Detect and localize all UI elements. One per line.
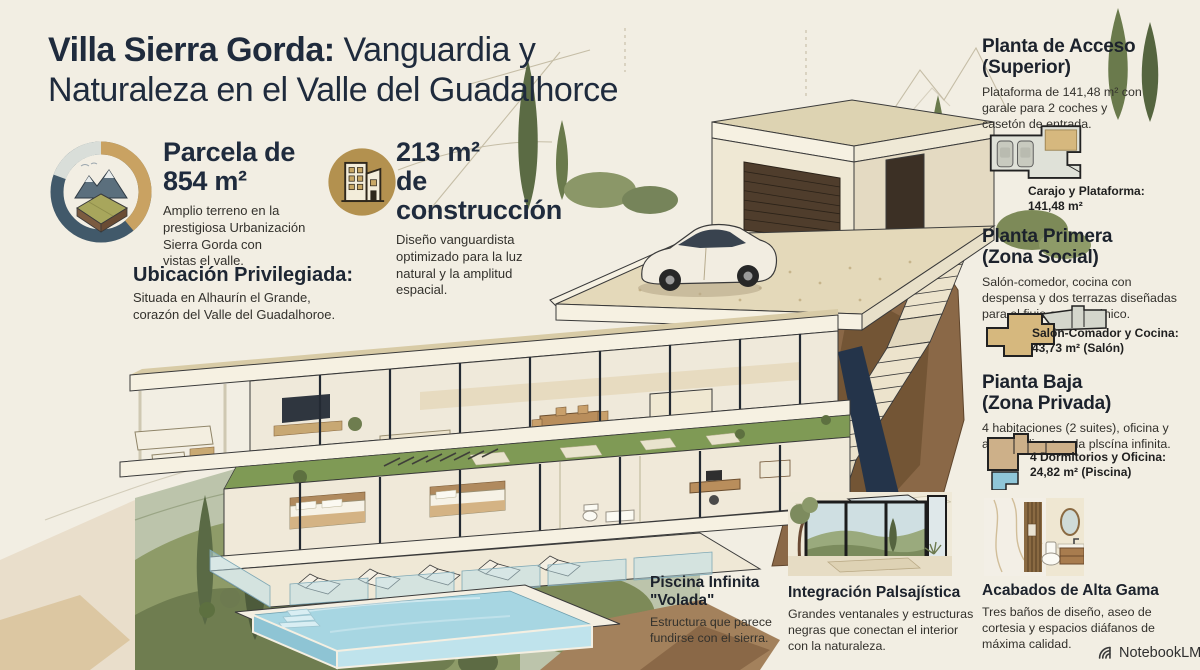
planta-acceso-heading: Planta de Acceso (Superior) — [982, 36, 1182, 79]
integracion-body: Grandes ventanales y estructuras negras … — [788, 606, 988, 654]
stat-construccion-heading: 213 m² de construcción — [396, 138, 596, 225]
mirror — [1061, 509, 1079, 535]
page-title: Villa Sierra Gorda: Vanguardia y Natural… — [48, 30, 688, 110]
planta-acceso-caption: Carajo y Plataforma: 141,48 m² — [1028, 184, 1145, 214]
access-floor-plan — [988, 122, 1108, 184]
location-body: Situada en Alhaurín el Grande, corazón d… — [133, 290, 383, 324]
acabados-heading: Acabados de Alta Gama — [982, 582, 1182, 600]
location-heading: Ubicación Privilegiada: — [133, 264, 383, 287]
tv — [282, 394, 330, 423]
window-landscape-illustration — [788, 492, 952, 576]
toilet — [583, 511, 597, 521]
planta-baja-caption: 4 Dormitorios y Oficina: 24,82 m² (Pisci… — [1030, 450, 1166, 480]
page-title-bold: Villa Sierra Gorda: — [48, 31, 335, 69]
stat-construccion: 213 m² de construcción Diseño vanguardis… — [396, 138, 596, 299]
building-icon — [320, 140, 404, 224]
note-acabados: Acabados de Alta Gama Tres baños de dise… — [982, 582, 1182, 652]
monitor — [706, 470, 722, 481]
brand-label: NotebookLM — [1119, 645, 1200, 661]
integracion-heading: Integración Palsajística — [788, 584, 988, 602]
note-piscina: Piscina Infinita "Volada" Estructura que… — [650, 574, 800, 646]
bathroom-illustration — [984, 498, 1084, 576]
brand-footer: NotebookLM — [1096, 644, 1200, 662]
plant — [348, 417, 362, 431]
parcel-donut-icon — [45, 136, 157, 248]
entry-door — [886, 154, 924, 240]
garage-block — [712, 100, 994, 246]
location-note: Ubicación Privilegiada: Situada en Alhau… — [133, 264, 383, 324]
planta-primera-caption: Salón-Comador y Cocina: 43,73 m² (Salón) — [1032, 326, 1179, 356]
piscina-body: Estructura que parece fundirse con el si… — [650, 614, 800, 646]
notebooklm-logo-icon — [1096, 644, 1114, 662]
infographic-canvas: Villa Sierra Gorda: Vanguardia y Natural… — [0, 0, 1200, 670]
planta-baja-heading: Pianta Baja (Zona Privada) — [982, 372, 1192, 415]
terrace-sofa — [135, 426, 213, 450]
wood-slat-panel — [1024, 502, 1042, 572]
planta-primera-heading: Planta Primera (Zona Social) — [982, 226, 1192, 269]
section-planta-acceso: Planta de Acceso (Superior) Plataforma d… — [982, 36, 1182, 132]
piscina-heading: Piscina Infinita "Volada" — [650, 574, 800, 610]
stat-construccion-body: Diseño vanguardista optimizado para la l… — [396, 232, 596, 299]
note-integracion: Integración Palsajística Grandes ventana… — [788, 584, 988, 654]
